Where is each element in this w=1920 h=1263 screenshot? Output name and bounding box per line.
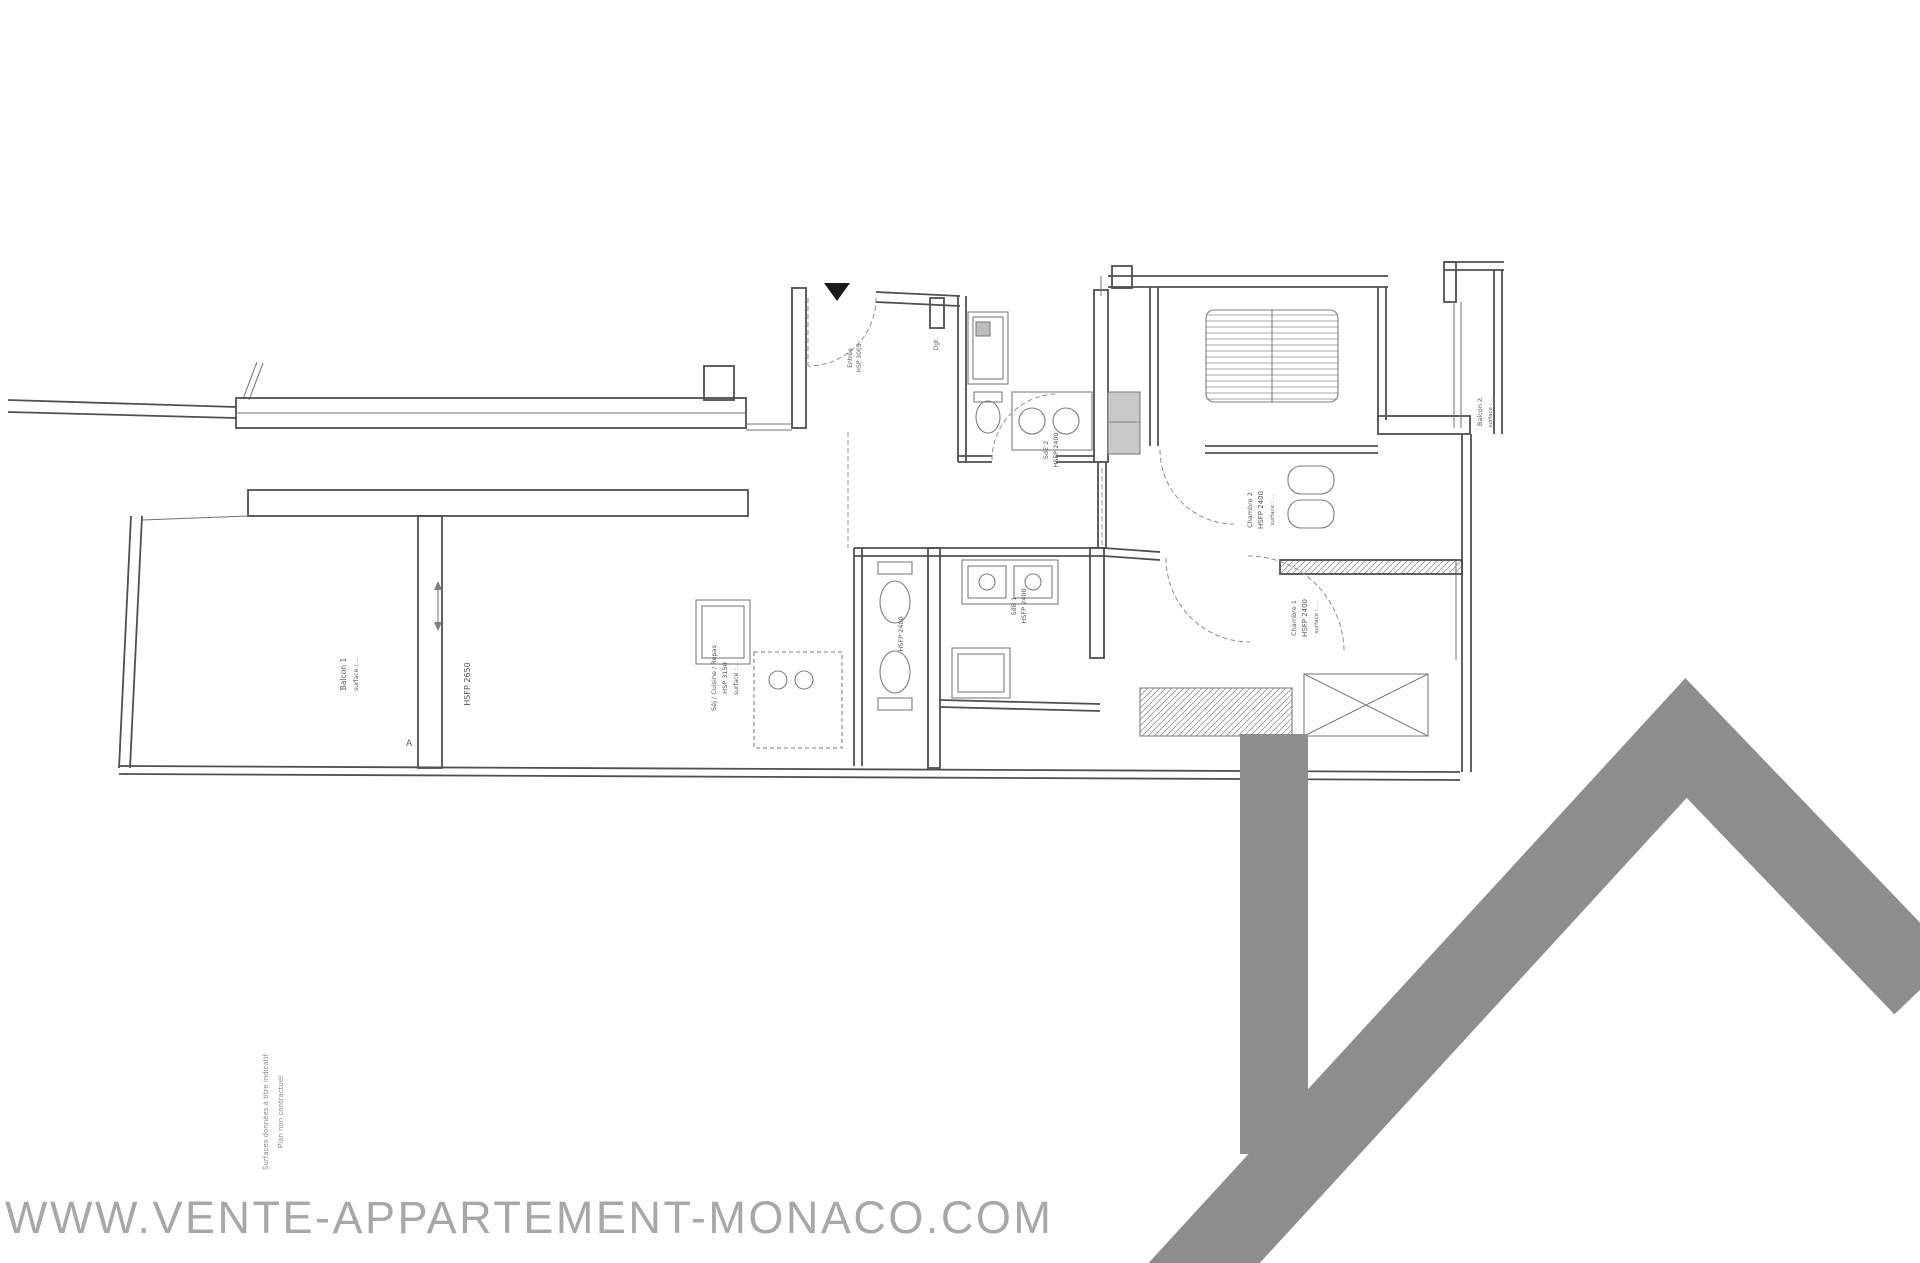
sejour-height: HSP 3150 (721, 662, 729, 694)
toilet-wc (878, 562, 912, 623)
sdb1-label: SdB 1 (1010, 597, 1018, 616)
section-marker: A (406, 739, 413, 749)
agency-house-logo (1150, 734, 1920, 1263)
fixtures (434, 310, 1428, 748)
wardrobe-chambre1 (1304, 674, 1428, 736)
kitchen-units (754, 652, 842, 748)
logo-chimney (1240, 734, 1308, 1154)
paired-fixtures (1288, 466, 1334, 528)
chambre2-surface: surface : ... (1270, 494, 1276, 525)
chambre2-height: HSFP 2400 (1257, 491, 1265, 529)
entree-label: Entrée (847, 348, 854, 368)
floor-plan-drawing: Balcon 1 surface : ... HSFP 2650 Séj / C… (0, 0, 1920, 1263)
degagement-label: Dgt (933, 339, 940, 350)
balcon2-surface: surface : ... (1488, 396, 1494, 427)
sde2-height: HSFP 2400 (1052, 432, 1060, 467)
sde2-label: SdE 2 (1042, 441, 1050, 460)
shower-sdb1 (952, 648, 1010, 698)
wc-height: HSFP 2400 (897, 616, 905, 651)
scanned-floor-plan-page: Balcon 1 surface : ... HSFP 2650 Séj / C… (0, 0, 1920, 1263)
chambre1-surface: surface : ... (1314, 602, 1320, 633)
sliding-door-arrows (434, 581, 442, 631)
balcon2-label: Balcon 2 (1476, 398, 1484, 426)
watermark-url: WWW.VENTE-APPARTEMENT-MONACO.COM (5, 1192, 1053, 1244)
toilet-sde2 (974, 392, 1002, 433)
bed-chambre2 (1206, 310, 1338, 402)
sejour-height-note: HSFP 2650 (463, 662, 472, 705)
note-line-1: Surfaces données à titre indicatif (262, 1054, 270, 1170)
appliance-box (1108, 392, 1140, 454)
chambre1-height: HSFP 2400 (1301, 599, 1309, 637)
balcon1-surface: surface : ... (353, 657, 360, 691)
sejour-label: Séj / Cuisine / Repas (710, 644, 718, 711)
sejour-surface: surface : ... (733, 661, 740, 695)
entrance-arrow-icon (824, 283, 850, 301)
table-sejour (696, 600, 750, 664)
chambre1-label: Chambre 1 (1290, 600, 1298, 636)
shower-tray (968, 312, 1008, 384)
sdb1-height: HSFP 2400 (1020, 588, 1028, 623)
balcon1-label: Balcon 1 (339, 658, 348, 691)
entree-height: HSP 3005 (856, 343, 863, 372)
disclaimer-notes: Surfaces données à titre indicatif Plan … (262, 1054, 285, 1170)
note-line-2: Plan non contractuel (277, 1076, 285, 1148)
bed-chambre1 (1140, 688, 1292, 736)
chambre2-label: Chambre 2 (1246, 492, 1254, 528)
bidet-wc (878, 651, 912, 710)
